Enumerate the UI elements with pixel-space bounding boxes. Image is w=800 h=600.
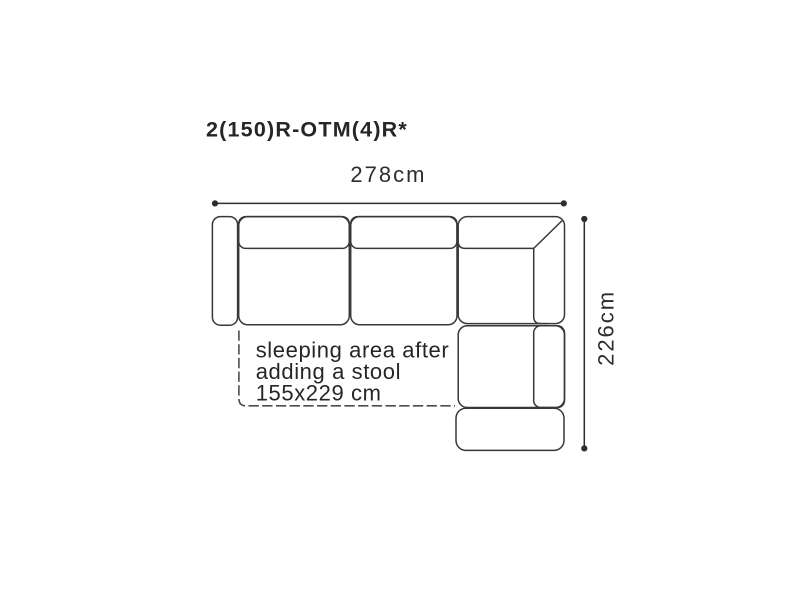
svg-text:226cm: 226cm: [594, 290, 619, 366]
svg-text:155x229 cm: 155x229 cm: [256, 380, 382, 405]
svg-text:278cm: 278cm: [350, 162, 426, 187]
svg-text:2(150)R-OTM(4)R*: 2(150)R-OTM(4)R*: [206, 118, 408, 142]
